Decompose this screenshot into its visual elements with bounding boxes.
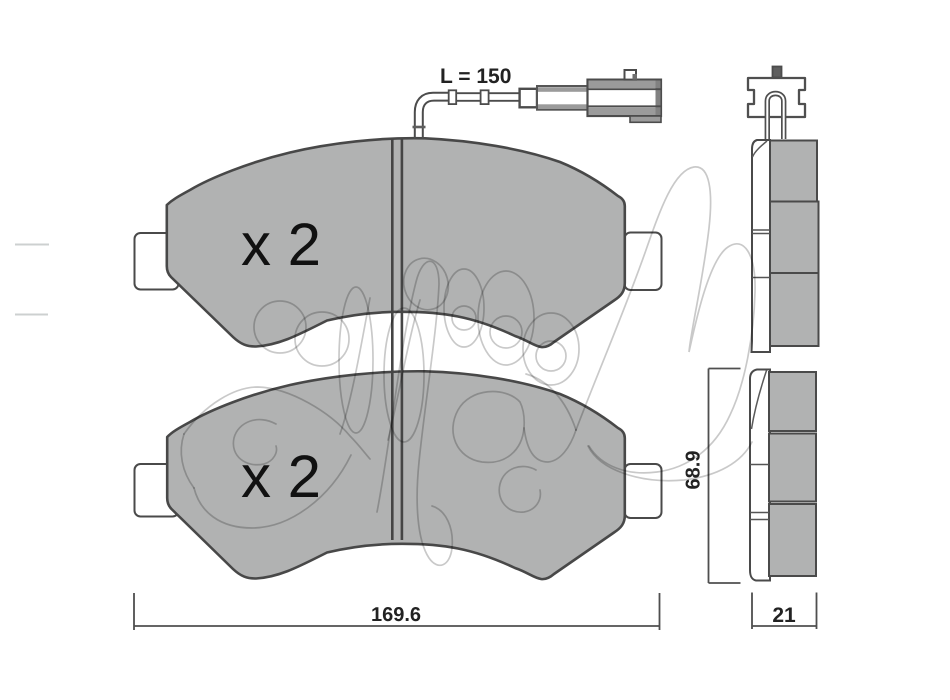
svg-text:x 2: x 2	[241, 211, 321, 278]
svg-text:21: 21	[772, 604, 796, 627]
svg-text:L = 150: L = 150	[440, 65, 511, 88]
svg-text:169.6: 169.6	[371, 604, 421, 626]
svg-text:x 2: x 2	[241, 443, 321, 510]
svg-text:68.9: 68.9	[682, 451, 704, 490]
